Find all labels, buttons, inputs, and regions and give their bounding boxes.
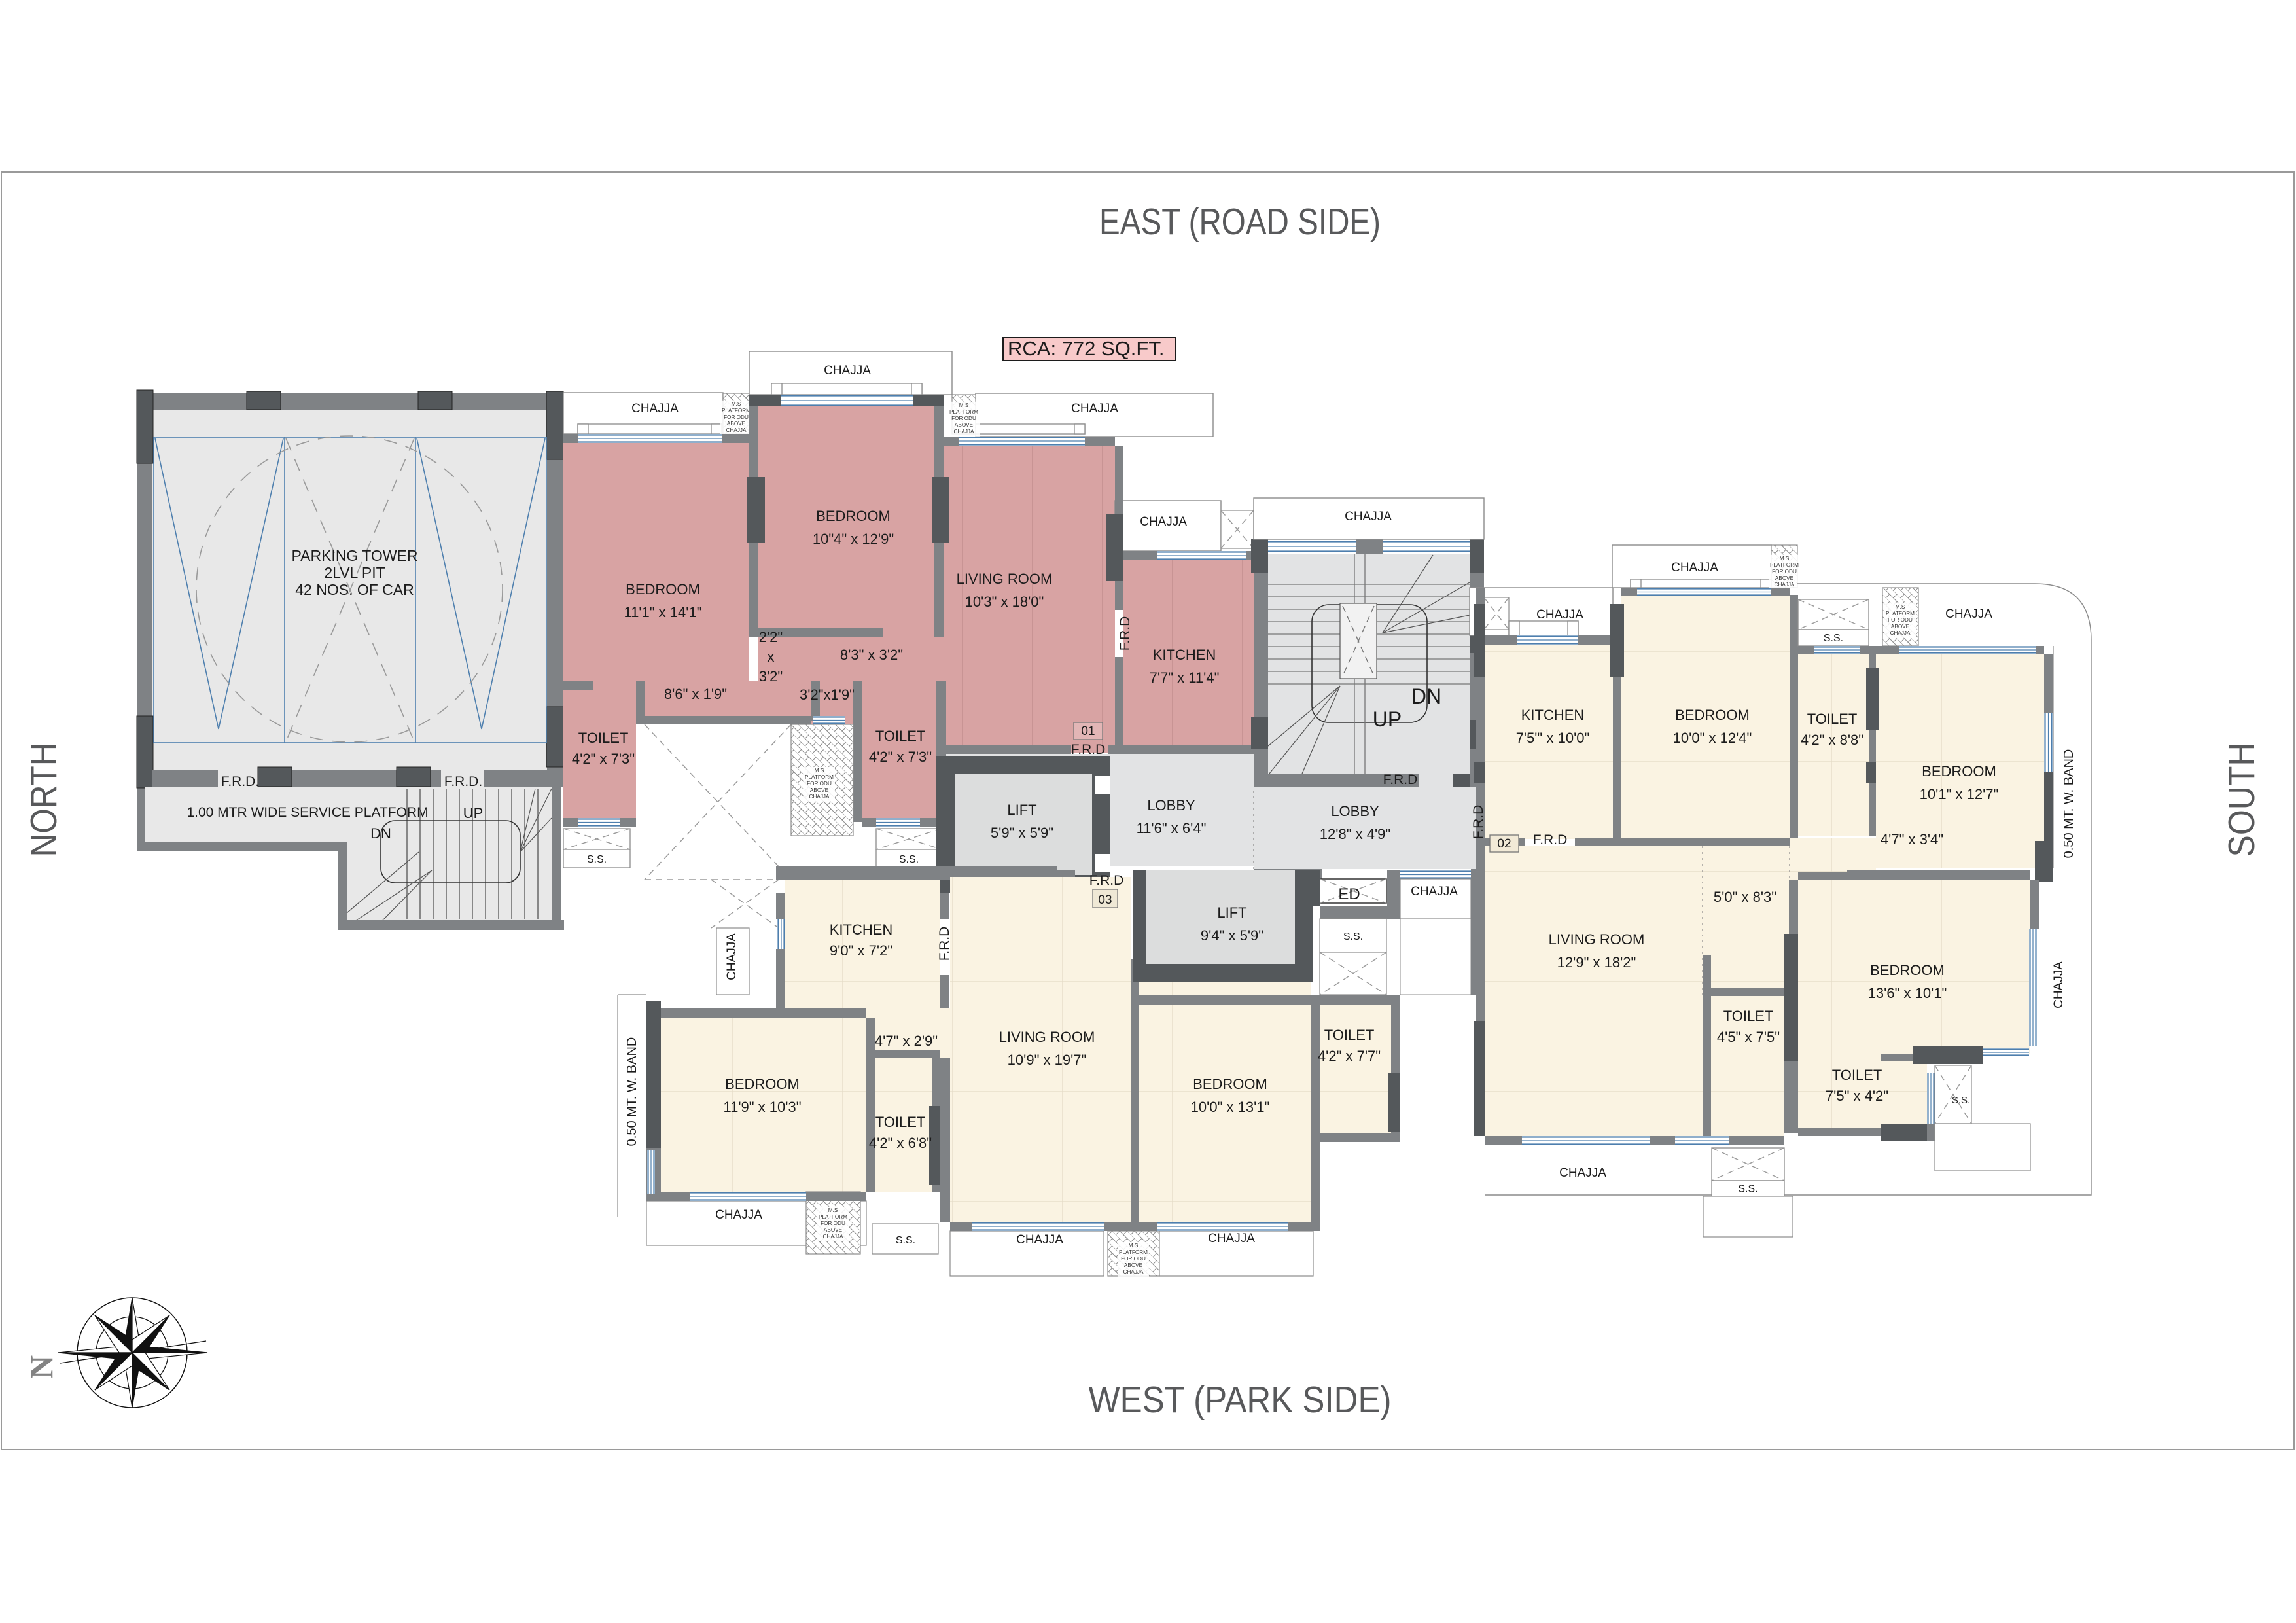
svg-text:BEDROOM: BEDROOM: [1193, 1076, 1267, 1092]
svg-text:FOR ODU: FOR ODU: [951, 416, 976, 421]
svg-text:CHAJJA: CHAJJA: [954, 429, 974, 435]
svg-text:01: 01: [1081, 724, 1095, 738]
svg-text:F.R.D: F.R.D: [1118, 616, 1133, 651]
svg-text:N: N: [23, 1355, 60, 1379]
svg-text:CHAJJA: CHAJJA: [1345, 510, 1392, 524]
svg-text:7'5" x 4'2": 7'5" x 4'2": [1826, 1088, 1888, 1104]
svg-text:S.S.: S.S.: [899, 854, 919, 865]
svg-text:10'0" x 13'1": 10'0" x 13'1": [1191, 1099, 1270, 1115]
svg-text:S.S.: S.S.: [1824, 633, 1843, 644]
svg-text:SOUTH: SOUTH: [2221, 743, 2263, 857]
svg-text:10'9" x 19'7": 10'9" x 19'7": [1008, 1052, 1087, 1068]
svg-text:S.S.: S.S.: [896, 1235, 915, 1246]
svg-text:BEDROOM: BEDROOM: [1675, 707, 1750, 723]
svg-text:0.50 MT. W. BAND: 0.50 MT. W. BAND: [625, 1037, 639, 1147]
svg-text:5'9" x 5'9": 5'9" x 5'9": [991, 825, 1053, 841]
svg-text:TOILET: TOILET: [1723, 1008, 1774, 1024]
svg-text:4'7" x 3'4": 4'7" x 3'4": [1881, 831, 1943, 847]
svg-text:TOILET: TOILET: [578, 730, 629, 746]
svg-text:CHAJJA: CHAJJA: [1411, 885, 1458, 899]
svg-text:PLATFORM: PLATFORM: [1119, 1249, 1148, 1255]
svg-text:4'5" x 7'5": 4'5" x 7'5": [1717, 1029, 1780, 1045]
svg-text:PLATFORM: PLATFORM: [805, 774, 834, 780]
svg-text:CHAJJA: CHAJJA: [1559, 1166, 1606, 1180]
svg-text:5'0" x 8'3": 5'0" x 8'3": [1714, 889, 1776, 905]
svg-text:12'9" x 18'2": 12'9" x 18'2": [1557, 954, 1636, 971]
svg-text:ABOVE: ABOVE: [1891, 624, 1910, 630]
svg-text:S.S.: S.S.: [1738, 1183, 1757, 1194]
svg-text:M.S: M.S: [732, 401, 741, 407]
svg-text:ABOVE: ABOVE: [955, 422, 974, 428]
svg-text:PLATFORM: PLATFORM: [949, 409, 978, 415]
svg-text:LIVING ROOM: LIVING ROOM: [957, 571, 1053, 587]
svg-text:S.S.: S.S.: [587, 854, 607, 865]
svg-text:TOILET: TOILET: [875, 728, 926, 744]
svg-text:LIFT: LIFT: [1217, 904, 1246, 921]
svg-text:TOILET: TOILET: [1807, 711, 1858, 727]
svg-text:11'9" x 10'3": 11'9" x 10'3": [723, 1099, 801, 1115]
svg-text:9'0" x 7'2": 9'0" x 7'2": [830, 942, 892, 959]
svg-text:BEDROOM: BEDROOM: [725, 1076, 800, 1092]
svg-text:CHAJJA: CHAJJA: [715, 1208, 762, 1222]
svg-text:FOR ODU: FOR ODU: [1121, 1256, 1146, 1262]
svg-text:ABOVE: ABOVE: [810, 787, 829, 793]
svg-text:TOILET: TOILET: [1324, 1027, 1375, 1043]
svg-text:CHAJJA: CHAJJA: [1208, 1232, 1255, 1245]
svg-text:M.S: M.S: [1896, 604, 1905, 610]
svg-text:PLATFORM: PLATFORM: [722, 408, 751, 414]
svg-text:PLATFORM: PLATFORM: [819, 1214, 847, 1220]
svg-text:S.S.: S.S.: [1343, 931, 1363, 942]
svg-text:8'3" x 3'2": 8'3" x 3'2": [840, 647, 903, 663]
svg-text:CHAJJA: CHAJJA: [726, 427, 747, 433]
svg-text:PLATFORM: PLATFORM: [1770, 562, 1799, 568]
svg-text:CHAJJA: CHAJJA: [823, 1234, 843, 1240]
svg-text:2'2": 2'2": [759, 629, 783, 645]
svg-text:02: 02: [1497, 837, 1511, 851]
svg-text:CHAJJA: CHAJJA: [1016, 1233, 1063, 1247]
svg-text:0.50 MT. W. BAND: 0.50 MT. W. BAND: [2062, 749, 2076, 859]
svg-text:4'2" x 7'7": 4'2" x 7'7": [1318, 1048, 1381, 1064]
svg-text:42 NOS. OF CAR: 42 NOS. OF CAR: [295, 581, 414, 598]
svg-text:M.S: M.S: [1129, 1243, 1139, 1249]
svg-text:8'6" x 1'9": 8'6" x 1'9": [664, 686, 727, 702]
svg-text:F.R.D: F.R.D: [1471, 805, 1486, 840]
svg-text:ABOVE: ABOVE: [1124, 1262, 1143, 1268]
svg-text:CHAJJA: CHAJJA: [1071, 402, 1118, 416]
svg-text:NORTH: NORTH: [23, 743, 65, 857]
svg-text:CHAJJA: CHAJJA: [725, 933, 739, 980]
svg-text:4'2" x 7'3": 4'2" x 7'3": [572, 751, 635, 767]
svg-text:F.R.D: F.R.D: [1383, 772, 1418, 787]
svg-text:CHAJJA: CHAJJA: [1140, 515, 1187, 529]
svg-text:FOR ODU: FOR ODU: [807, 781, 832, 787]
svg-text:12'8" x 4'9": 12'8" x 4'9": [1320, 826, 1390, 842]
svg-text:WEST (PARK SIDE): WEST (PARK SIDE): [1089, 1379, 1392, 1421]
svg-text:UP: UP: [463, 805, 484, 821]
svg-text:CHAJJA: CHAJJA: [824, 364, 871, 378]
svg-text:10"4" x 12'9": 10"4" x 12'9": [813, 531, 894, 547]
svg-text:FOR ODU: FOR ODU: [1888, 617, 1913, 623]
svg-text:3'2"x1'9": 3'2"x1'9": [800, 687, 855, 703]
svg-text:KITCHEN: KITCHEN: [1521, 707, 1585, 723]
svg-text:4'7" x 2'9": 4'7" x 2'9": [875, 1033, 938, 1049]
svg-text:BEDROOM: BEDROOM: [1870, 962, 1945, 978]
svg-text:RCA: 772 SQ.FT.: RCA: 772 SQ.FT.: [1008, 337, 1164, 360]
svg-text:BEDROOM: BEDROOM: [1922, 763, 1996, 779]
svg-text:CHAJJA: CHAJJA: [1890, 630, 1911, 636]
svg-text:BEDROOM: BEDROOM: [816, 508, 891, 524]
svg-text:TOILET: TOILET: [875, 1114, 926, 1130]
svg-text:LIVING ROOM: LIVING ROOM: [999, 1029, 1095, 1045]
svg-text:DN: DN: [1411, 685, 1441, 708]
svg-text:LOBBY: LOBBY: [1331, 803, 1379, 819]
svg-text:ABOVE: ABOVE: [1775, 575, 1794, 581]
svg-text:03: 03: [1098, 893, 1112, 907]
svg-text:7'5"' x 10'0": 7'5"' x 10'0": [1516, 730, 1590, 746]
svg-text:CHAJJA: CHAJJA: [1536, 608, 1583, 622]
svg-text:F.R.D: F.R.D: [1089, 873, 1124, 888]
svg-text:F.R.D.: F.R.D.: [221, 774, 259, 789]
svg-text:PLATFORM: PLATFORM: [1886, 611, 1915, 616]
svg-text:ABOVE: ABOVE: [727, 421, 746, 427]
svg-text:CHAJJA: CHAJJA: [1671, 561, 1718, 575]
svg-text:M.S: M.S: [1780, 556, 1790, 562]
svg-text:4'2" x 6'8": 4'2" x 6'8": [869, 1135, 932, 1151]
svg-text:F.R.D: F.R.D: [1533, 832, 1568, 847]
svg-text:LOBBY: LOBBY: [1147, 797, 1195, 813]
svg-text:KITCHEN: KITCHEN: [1153, 647, 1216, 663]
svg-text:LIFT: LIFT: [1007, 802, 1036, 818]
svg-text:CHAJJA: CHAJJA: [1123, 1269, 1144, 1275]
svg-text:ED: ED: [1338, 885, 1360, 903]
svg-text:11'6" x 6'4": 11'6" x 6'4": [1137, 820, 1207, 836]
svg-text:FOR ODU: FOR ODU: [724, 414, 749, 420]
svg-text:LIVING ROOM: LIVING ROOM: [1549, 931, 1645, 948]
svg-text:FOR ODU: FOR ODU: [821, 1221, 845, 1226]
svg-text:4'2" x 8'8": 4'2" x 8'8": [1801, 732, 1863, 748]
svg-text:M.S: M.S: [959, 402, 969, 408]
svg-text:CHAJJA: CHAJJA: [1775, 582, 1795, 588]
svg-text:F.R.D: F.R.D: [937, 927, 952, 961]
svg-text:ABOVE: ABOVE: [824, 1227, 843, 1233]
svg-text:1.00 MTR WIDE SERVICE PLATFORM: 1.00 MTR WIDE SERVICE PLATFORM: [186, 805, 428, 820]
svg-text:KITCHEN: KITCHEN: [830, 921, 893, 938]
svg-text:CHAJJA: CHAJJA: [1945, 607, 1992, 621]
svg-text:x: x: [768, 649, 775, 665]
svg-text:F.R.D.: F.R.D.: [444, 774, 482, 789]
svg-text:10'3" x 18'0": 10'3" x 18'0": [965, 594, 1044, 610]
svg-text:10'1" x 12'7": 10'1" x 12'7": [1920, 786, 1999, 802]
svg-text:EAST (ROAD SIDE): EAST (ROAD SIDE): [1099, 201, 1381, 243]
svg-text:PARKING TOWER: PARKING TOWER: [292, 547, 418, 564]
svg-text:4'2" x 7'3": 4'2" x 7'3": [869, 749, 932, 765]
svg-text:3'2": 3'2": [759, 668, 783, 685]
svg-text:10'0" x 12'4": 10'0" x 12'4": [1673, 730, 1752, 746]
svg-text:S.S.: S.S.: [1952, 1095, 1970, 1106]
svg-text:7'7" x 11'4": 7'7" x 11'4": [1150, 669, 1220, 686]
svg-text:M.S: M.S: [828, 1207, 838, 1213]
svg-text:11'1" x 14'1": 11'1" x 14'1": [624, 604, 701, 620]
svg-text:CHAJJA: CHAJJA: [2052, 961, 2066, 1008]
svg-text:13'6" x 10'1": 13'6" x 10'1": [1868, 985, 1947, 1001]
svg-text:BEDROOM: BEDROOM: [626, 581, 700, 597]
svg-text:UP: UP: [1373, 707, 1402, 731]
svg-text:CHAJJA: CHAJJA: [631, 402, 679, 416]
svg-text:CHAJJA: CHAJJA: [809, 794, 830, 800]
svg-text:9'4" x 5'9": 9'4" x 5'9": [1201, 927, 1263, 944]
svg-text:2LVL PIT: 2LVL PIT: [324, 564, 385, 581]
svg-text:M.S: M.S: [815, 768, 824, 774]
svg-text:TOILET: TOILET: [1832, 1067, 1882, 1083]
svg-text:FOR ODU: FOR ODU: [1772, 569, 1797, 575]
